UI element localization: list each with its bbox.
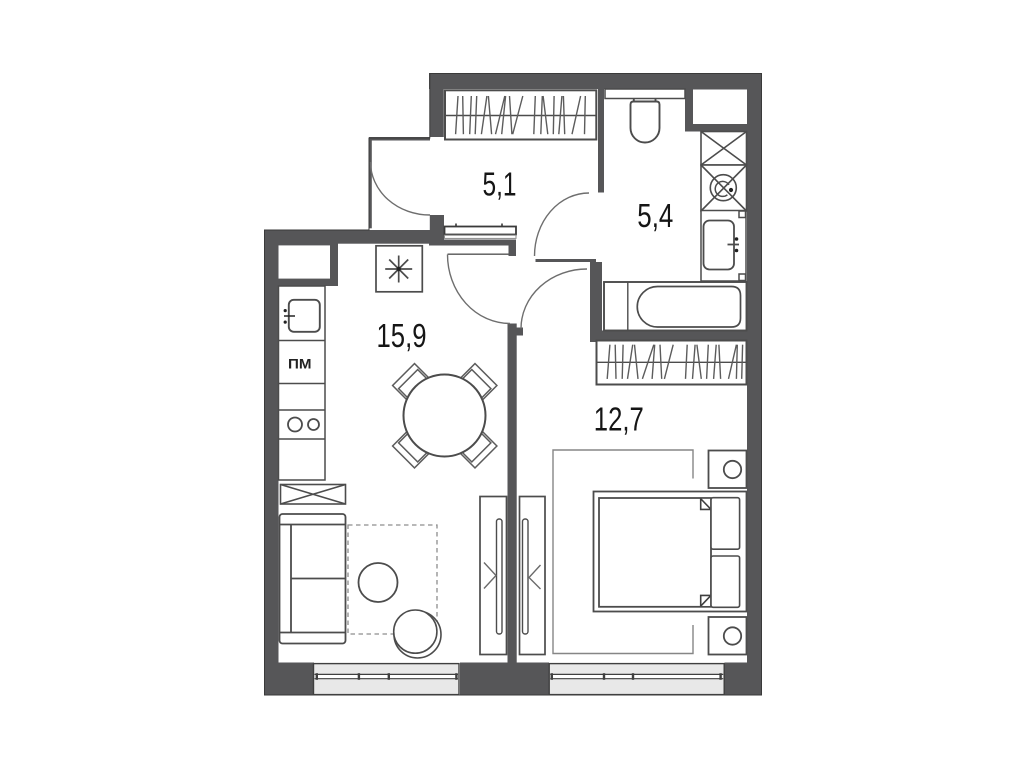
svg-text:5,4: 5,4 [637, 198, 673, 235]
svg-text:ПМ: ПМ [288, 356, 312, 372]
svg-text:15,9: 15,9 [377, 318, 427, 355]
svg-text:5,1: 5,1 [483, 167, 517, 204]
svg-text:12,7: 12,7 [594, 402, 644, 439]
